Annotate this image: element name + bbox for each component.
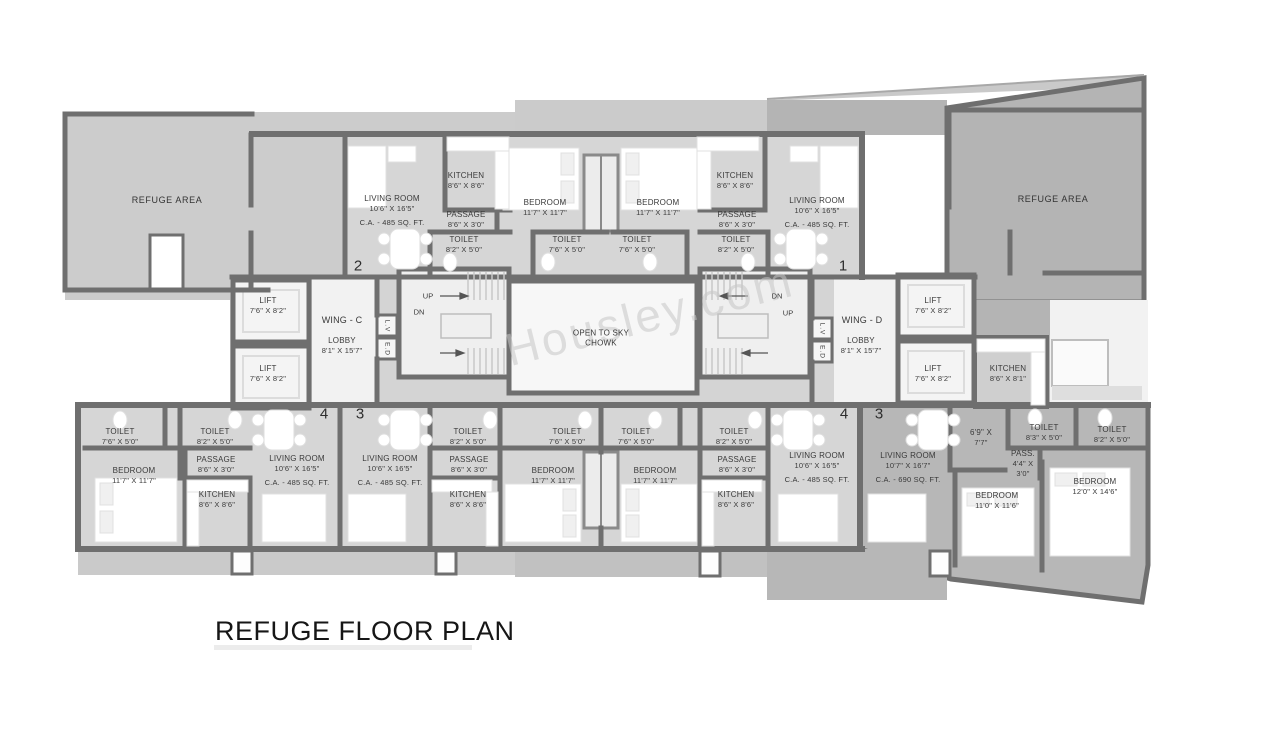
shaft-label-lv-c: L.V <box>384 320 391 333</box>
room-label-passage-d1: PASSAGE8'6" X 3'0" <box>717 210 756 230</box>
room-label-bedroom-c3: BEDROOM11'7" X 11'7" <box>531 466 575 486</box>
unit-marker-2: 2 <box>354 258 362 275</box>
shaft-label-ed-c: E.D <box>384 342 391 356</box>
room-label-passage-c4: PASSAGE8'6" X 3'0" <box>196 455 235 475</box>
unit-marker-4-d: 4 <box>840 406 848 423</box>
room-label-kitchen-d4: KITCHEN8'6" X 8'6" <box>718 490 755 510</box>
room-label-toilet-c4a: TOILET7'6" X 5'0" <box>102 427 138 447</box>
room-label-lift-d1: LIFT7'6" X 8'2" <box>915 296 951 316</box>
room-label-toilet-c3a: TOILET8'2" X 5'0" <box>450 427 486 447</box>
room-label-living-room-c2: LIVING ROOM10'6" X 16'5"C.A. - 485 SQ. F… <box>360 194 425 228</box>
room-label-bedroom-1: BEDROOM11'7" X 11'7" <box>636 198 680 218</box>
room-label-living-room-d3: LIVING ROOM10'7" X 16'7"C.A. - 690 SQ. F… <box>876 451 941 485</box>
room-label-living-room-c3: LIVING ROOM10'6" X 16'5"C.A. - 485 SQ. F… <box>358 454 423 488</box>
room-label-bedroom-d3b: BEDROOM12'0" X 14'6" <box>1073 477 1118 497</box>
room-label-lift-c2: LIFT7'6" X 8'2" <box>250 364 286 384</box>
refuge-area-right-label: REFUGE AREA <box>1018 194 1089 204</box>
room-label-kitchen-d: KITCHEN8'6" X 8'1" <box>990 364 1027 384</box>
page-title: REFUGE FLOOR PLAN <box>215 616 515 647</box>
unit-marker-1: 1 <box>839 258 847 275</box>
room-label-foyer-d3: 6'9" X7'7" <box>970 428 992 448</box>
room-label-toilet-d3a: TOILET8'3" X 5'0" <box>1026 423 1062 443</box>
room-label-bedroom-2: BEDROOM11'7" X 11'7" <box>523 198 567 218</box>
room-label-living-room-c4: LIVING ROOM10'6" X 16'5"C.A. - 485 SQ. F… <box>265 454 330 488</box>
room-label-toilet-1: TOILET7'6" X 5'0" <box>619 235 655 255</box>
unit-marker-4-c: 4 <box>320 406 328 423</box>
refuge-area-left-label: REFUGE AREA <box>132 195 203 205</box>
room-label-toilet-d4a: TOILET7'6" X 5'0" <box>618 427 654 447</box>
unit-marker-3-d: 3 <box>875 406 883 423</box>
room-label-pass-d3: PASS.4'4" X3'0" <box>1011 449 1035 479</box>
room-label-toilet-d1: TOILET8'2" X 5'0" <box>718 235 754 255</box>
floor-plan-page: Housley.com REFUGE AREA REFUGE AREA LIVI… <box>0 0 1280 750</box>
room-label-kitchen-c3: KITCHEN8'6" X 8'6" <box>450 490 487 510</box>
room-label-living-room-d4: LIVING ROOM10'6" X 16'5"C.A. - 485 SQ. F… <box>785 451 850 485</box>
stair-up-label-c: UP <box>423 292 433 301</box>
room-label-kitchen-c2: KITCHEN8'6" X 8'6" <box>448 171 485 191</box>
room-label-lift-c1: LIFT7'6" X 8'2" <box>250 296 286 316</box>
room-label-passage-d4: PASSAGE8'6" X 3'0" <box>717 455 756 475</box>
room-label-passage-c2: PASSAGE8'6" X 3'0" <box>446 210 485 230</box>
room-label-bedroom-d4: BEDROOM11'7" X 11'7" <box>633 466 677 486</box>
shaft-label-ed-d: E.D <box>819 345 826 359</box>
unit-marker-3-c: 3 <box>356 406 364 423</box>
wing-d-label: WING - D <box>842 315 883 327</box>
room-label-lobby-c: LOBBY8'1" X 15'7" <box>322 336 363 356</box>
room-label-lift-d2: LIFT7'6" X 8'2" <box>915 364 951 384</box>
room-label-toilet-c3b: TOILET7'6" X 5'0" <box>549 427 585 447</box>
room-label-bedroom-c4: BEDROOM11'7" X 11'7" <box>112 466 156 486</box>
floor-plan-drawing <box>0 0 1280 750</box>
shaft-label-lv-d: L.V <box>819 323 826 336</box>
room-label-toilet-c4b: TOILET8'2" X 5'0" <box>197 427 233 447</box>
stair-dn-label-c: DN <box>414 308 425 317</box>
room-label-kitchen-d1: KITCHEN8'6" X 8'6" <box>717 171 754 191</box>
room-label-lobby-d: LOBBY8'1" X 15'7" <box>841 336 882 356</box>
room-label-kitchen-c4: KITCHEN8'6" X 8'6" <box>199 490 236 510</box>
chowk-label: OPEN TO SKYCHOWK <box>573 329 629 350</box>
stair-up-label-d: UP <box>783 309 793 318</box>
room-label-living-room-d1: LIVING ROOM10'6" X 16'5"C.A. - 485 SQ. F… <box>785 196 850 230</box>
wing-c-label: WING - C <box>322 315 363 327</box>
room-label-toilet-d4b: TOILET8'2" X 5'0" <box>716 427 752 447</box>
room-label-passage-c3: PASSAGE8'6" X 3'0" <box>449 455 488 475</box>
room-label-toilet-d3b: TOILET8'2" X 5'0" <box>1094 425 1130 445</box>
room-label-toilet-2: TOILET7'6" X 5'0" <box>549 235 585 255</box>
stair-dn-label-d: DN <box>772 292 783 301</box>
room-label-bedroom-d3a: BEDROOM11'0" X 11'6" <box>975 491 1019 511</box>
room-label-toilet-c2: TOILET8'2" X 5'0" <box>446 235 482 255</box>
